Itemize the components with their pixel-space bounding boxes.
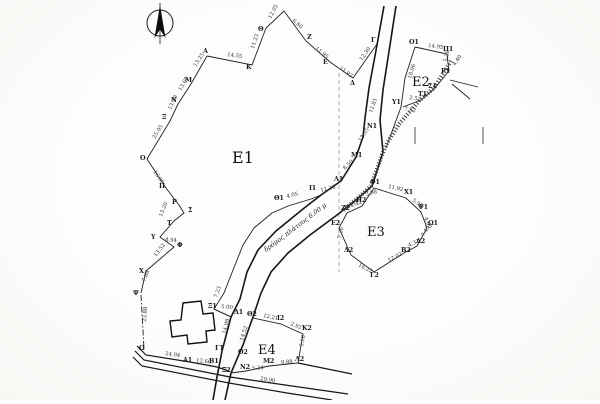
measurement-label: 23.88 <box>142 306 149 322</box>
survey-point-label: Μ2 <box>263 357 274 365</box>
measurement-label: 12.66 <box>196 358 212 366</box>
survey-point-label: Λ2 <box>294 355 304 363</box>
survey-point-label: Κ <box>246 63 252 71</box>
survey-point-label: Σ <box>188 206 193 214</box>
survey-point-label: Κ2 <box>302 324 312 332</box>
measurement-label: 13.10 <box>167 94 179 111</box>
survey-point-label: Υ1 <box>391 98 401 106</box>
survey-point-label: Θ1 <box>274 194 284 202</box>
road-name-label: δρόμος πλάτους 6.00 μ <box>262 201 328 253</box>
survey-map-canvas: Ε1 Ε2 Ε3 Ε4 δρόμος πλάτους 6.00 μ ΑΚΘΖΕΔ… <box>0 0 600 400</box>
measurement-label: 13.25 <box>193 52 206 68</box>
measurement-label: 9.88 <box>281 359 294 366</box>
survey-point-label: Γ <box>371 36 376 44</box>
survey-point-label: Ρ <box>172 198 177 206</box>
survey-point-label: Γ1 <box>215 344 224 352</box>
measurement-label: 14.52 <box>239 325 249 341</box>
parcel-e1-south-boundary <box>214 195 321 317</box>
measurement-label: 11.92 <box>338 66 354 80</box>
measurement-label: 4.05 <box>286 191 299 200</box>
measurement-label: 5.28 <box>443 49 451 62</box>
survey-point-label: Α1 <box>182 356 192 364</box>
survey-point-label: Δ <box>350 79 355 87</box>
measurement-label: 16.22 <box>357 262 373 274</box>
measurement-label: 14.98 <box>222 318 231 335</box>
survey-point-label: Ψ <box>133 289 139 297</box>
parcel-e1-west-boundary <box>141 56 207 293</box>
measurement-label: 7.26 <box>337 226 345 239</box>
survey-point-label: Θ2 <box>247 310 257 318</box>
survey-point-label: Ο2 <box>238 348 248 356</box>
measurement-label: 29.90 <box>260 376 277 384</box>
survey-point-label: Ζ2 <box>341 204 350 212</box>
measurement-label: 2.92 <box>289 321 302 331</box>
survey-point-label: Λ1 <box>333 175 343 183</box>
measurement-label: 5.34 <box>252 365 265 372</box>
survey-point-label: Ι1 <box>309 184 316 192</box>
survey-point-label: Δ1 <box>234 308 243 316</box>
survey-point-label: Ο1 <box>409 38 419 46</box>
parcel-label-e4: Ε4 <box>258 343 276 358</box>
survey-point-label: Ο <box>140 154 146 162</box>
survey-point-label: Υ <box>150 233 156 241</box>
survey-point-label: Ε2 <box>331 219 340 227</box>
survey-point-label: Ζ <box>307 33 312 41</box>
measurement-label: 2.52 <box>409 95 422 103</box>
survey-point-label: Θ <box>258 25 264 33</box>
measurement-label: 11.95 <box>314 46 329 60</box>
measurement-label: 12.02 <box>387 251 403 263</box>
retaining-wall-branch-lines <box>450 80 478 99</box>
measurement-label: 2.42 <box>350 200 363 209</box>
survey-point-label: Ρ1 <box>441 67 450 75</box>
survey-point-label: Φ1 <box>370 178 380 186</box>
measurement-label: 13.20 <box>158 201 169 218</box>
survey-point-label: Μ1 <box>351 151 362 159</box>
measurement-label: 5.18 <box>299 334 307 347</box>
survey-point-label: Ν2 <box>240 363 250 371</box>
measurement-label: 13.52 <box>153 243 167 259</box>
measurement-label: 11.26 <box>320 184 337 194</box>
measurement-label: 11.92 <box>388 184 404 193</box>
survey-point-label: Τ <box>167 219 172 227</box>
measurement-label: 4.94 <box>165 237 178 244</box>
measurement-label: 5.00 <box>221 304 234 311</box>
survey-point-label: Σ1 <box>428 82 437 90</box>
label-layer: ΑΚΘΖΕΔΓΜΝΞΟΠΡΣΤΥΦΧΨΩΝ1Μ1Λ1Ι1Θ1Ξ1Δ1Γ1Ο1Π1… <box>133 4 464 385</box>
survey-point-label: Ξ2 <box>222 366 231 374</box>
survey-point-label: Χ1 <box>404 188 413 196</box>
measurement-label: 12.81 <box>368 97 379 113</box>
survey-point-label: Ω <box>139 344 145 352</box>
measurement-label: 7.52 <box>404 106 417 114</box>
measurement-label: 25.05 <box>152 124 165 140</box>
survey-point-label: Δ2 <box>344 246 353 254</box>
scanned-survey-page: Ε1 Ε2 Ε3 Ε4 δρόμος πλάτους 6.00 μ ΑΚΘΖΕΔ… <box>0 0 600 400</box>
survey-point-label: Ξ <box>162 113 167 121</box>
measurement-label: 13.55 <box>358 127 371 143</box>
tick-marks <box>415 127 483 144</box>
parcel-label-e1: Ε1 <box>232 148 254 167</box>
survey-point-label: Ξ1 <box>208 302 217 310</box>
parcel-label-e3: Ε3 <box>367 225 385 240</box>
north-arrow-icon <box>147 3 173 44</box>
measurement-label: 14.55 <box>227 52 243 60</box>
measurement-label: 4.40 <box>452 54 464 68</box>
measurement-label: 12.05 <box>267 4 279 20</box>
survey-point-label: Φ <box>177 241 183 249</box>
